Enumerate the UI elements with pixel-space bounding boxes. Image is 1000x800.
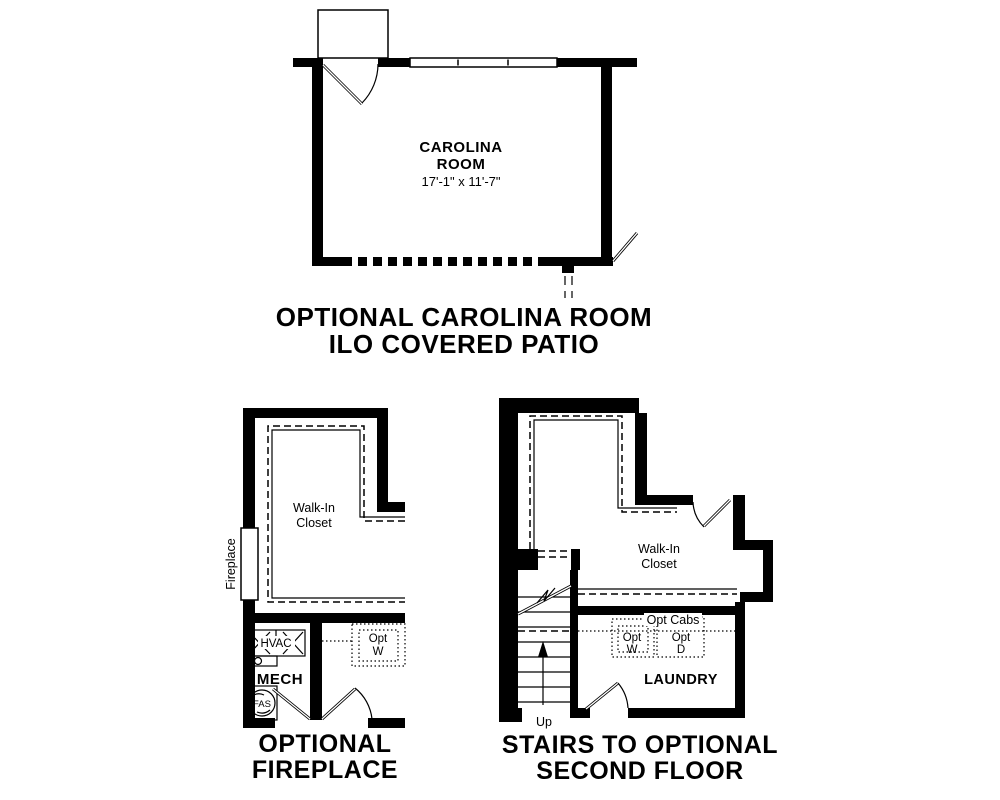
caption-line1: STAIRS TO OPTIONAL: [502, 731, 778, 759]
corner-diagonal: [613, 233, 637, 261]
walkin-closet-label: Walk-In Closet: [293, 501, 335, 530]
walkin-closet-label: Walk-In Closet: [638, 542, 680, 571]
opt-d-line2: D: [677, 644, 685, 656]
closet-line1: Walk-In: [293, 501, 335, 515]
caption-line1: OPTIONAL: [258, 730, 391, 758]
closet-line1: Walk-In: [638, 542, 680, 556]
stairs-caption: STAIRS TO OPTIONAL SECOND FLOOR: [502, 731, 778, 785]
fireplace-box: [241, 528, 258, 600]
opt-w-line2: W: [373, 646, 384, 658]
caption-line2: ILO COVERED PATIO: [329, 329, 599, 359]
closet-line2: Closet: [641, 557, 677, 571]
opt-cabs-label: Opt Cabs: [647, 613, 700, 627]
caption-line2: FIREPLACE: [252, 756, 398, 784]
opt-w-line2: W: [627, 644, 638, 656]
floorplan-drawing: CAROLINA ROOM 17'-1" x 11'-7" OPTIONAL C…: [0, 0, 1000, 800]
laundry-door-swing: [586, 683, 628, 709]
stairs-up-arrow: [538, 641, 548, 705]
carolina-entry-door-swing: [323, 64, 378, 104]
patio-stub-dashed-lines: [565, 276, 572, 298]
stairs-break-line: [518, 586, 571, 614]
opt-cabs: Opt W Opt D Opt Cabs: [578, 613, 735, 657]
fireplace-caption: OPTIONAL FIREPLACE: [252, 730, 398, 784]
opt-d-line1: Opt: [672, 632, 691, 644]
carolina-window: [410, 58, 557, 67]
opt-w-line1: Opt: [369, 633, 388, 645]
fireplace-label: Fireplace: [224, 538, 238, 589]
cased-opening-dashes: [538, 551, 571, 557]
opt-w-line1: Opt: [623, 632, 642, 644]
carolina-room-label: CAROLINA ROOM 17'-1" x 11'-7": [419, 139, 502, 189]
fas-label: FAS: [253, 699, 271, 710]
laundry-label: LAUNDRY: [644, 672, 718, 688]
door-landing: [318, 10, 388, 58]
caption-line1: OPTIONAL CAROLINA ROOM: [276, 302, 652, 332]
room-name-line2: ROOM: [437, 156, 486, 173]
up-label: Up: [536, 715, 552, 729]
closet-shelf-lines: [530, 416, 737, 594]
optional-fireplace-plan: Fireplace Walk-In Closet HVAC MECH: [224, 408, 405, 784]
caption-line2: SECOND FLOOR: [536, 757, 743, 785]
hvac-unit: HVAC: [247, 630, 305, 666]
stairs-plan: Walk-In Closet U: [499, 398, 778, 785]
mech-doors: [273, 688, 372, 719]
carolina-caption: OPTIONAL CAROLINA ROOM ILO COVERED PATIO: [276, 302, 652, 359]
hvac-label: HVAC: [260, 638, 291, 650]
carolina-room-plan: CAROLINA ROOM 17'-1" x 11'-7" OPTIONAL C…: [276, 10, 652, 359]
room-dimensions: 17'-1" x 11'-7": [422, 174, 501, 189]
closet-line2: Closet: [296, 516, 332, 530]
stairs-walls: [499, 398, 773, 722]
floorplan-sheet: CAROLINA ROOM 17'-1" x 11'-7" OPTIONAL C…: [0, 0, 1000, 800]
closet-door-swing: [693, 500, 730, 527]
patio-stub-wall: [562, 266, 574, 273]
room-name-line1: CAROLINA: [419, 139, 502, 156]
opt-washer-box: Opt W: [322, 624, 405, 666]
